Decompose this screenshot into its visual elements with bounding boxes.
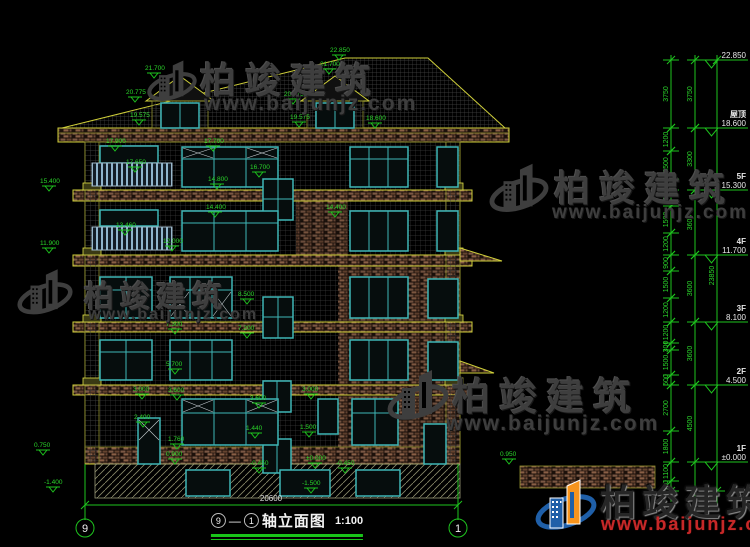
dim-segment-value: 1800: [663, 439, 670, 455]
footer-logo: [534, 472, 598, 541]
drawing-title: 9—1 轴立面图 1:100: [211, 510, 363, 540]
level-markers: 22.850屋顶18.6005F15.3004F11.7003F8.1002F4…: [693, 51, 748, 470]
elevation-mark-icon: [128, 97, 142, 102]
elevation-label: 17.700: [204, 138, 224, 145]
elevation-label: 5.700: [166, 361, 183, 368]
axis-dash: —: [229, 514, 241, 528]
grid-bubble-9-label: 9: [82, 523, 88, 535]
elevation-label: 14.400: [326, 204, 346, 211]
watermark-left: [16, 262, 74, 325]
elevation-mark-icon: [36, 450, 50, 455]
elevation-label: 20.775: [126, 89, 146, 96]
watermark-top-url: www.baijunjz.com: [204, 92, 417, 116]
level-name: 3F: [737, 304, 746, 313]
dim-segment-value: 1500: [663, 355, 670, 371]
level-value: 11.700: [722, 246, 746, 255]
elevation-label: 16.700: [250, 164, 270, 171]
elevation-label: 18.600: [366, 115, 386, 122]
elevation-label: 11.900: [40, 240, 60, 247]
level-value: ±0.000: [722, 453, 747, 462]
elevation-mark-icon: [46, 487, 60, 492]
elevation-label: 3.600: [250, 395, 267, 402]
elevation-mark-icon: [42, 186, 56, 191]
dim-segment-value: 3600: [687, 281, 694, 297]
title-underline-thin: [211, 539, 363, 540]
dim-segment-value: 3600: [687, 346, 694, 362]
baijun-logo-icon: [488, 156, 550, 218]
baijun-logo-icon: [16, 262, 74, 320]
level-name: 2F: [737, 367, 746, 376]
level-name: 屋顶: [730, 109, 746, 119]
elevation-label: 1.440: [246, 425, 263, 432]
dim-segment-value: 1500: [663, 277, 670, 293]
dim-segment-value: 1200: [663, 325, 670, 341]
elevation-label: -1.400: [44, 479, 63, 486]
drawing-scale: 1:100: [335, 515, 363, 527]
dim-segment-value: 1200: [663, 302, 670, 318]
elevation-label: 17.650: [126, 159, 146, 166]
elevation-label: 1.500: [300, 424, 317, 431]
elevation-label: 15.400: [40, 178, 60, 185]
level-triangle-icon: [705, 385, 718, 393]
elevation-label: 2.400: [134, 414, 151, 421]
elevation-label: 13.460: [116, 222, 136, 229]
elevation-label: 7.200: [238, 325, 255, 332]
elevation-label: 0.950: [500, 451, 517, 458]
total-width-dim: 20600: [260, 494, 283, 503]
elevation-label: 14.800: [208, 176, 228, 183]
dim-segment-value: 3750: [687, 86, 694, 102]
watermark-top: [146, 54, 198, 111]
elevation-label: 8.500: [238, 291, 255, 298]
elevation-label: 0.750: [34, 442, 51, 449]
baijun-logo-icon: [386, 362, 450, 426]
dim-segment-value: 300: [663, 341, 670, 353]
elevation-label: 1.760: [168, 436, 185, 443]
level-value: 8.100: [726, 313, 747, 322]
watermark-right-url: www.baijunjz.com: [552, 202, 748, 224]
dim-segment-value: 4500: [687, 416, 694, 432]
watermark-right: [488, 156, 550, 223]
dim-segment-value: 900: [663, 257, 670, 269]
level-name: 5F: [737, 172, 746, 181]
dim-segment-value: 1200: [663, 236, 670, 252]
level-name: 4F: [737, 237, 746, 246]
elevation-label: 3.000: [302, 386, 319, 393]
dim-segment-value: 600: [663, 374, 670, 386]
elevation-label: ±0.000: [306, 455, 326, 462]
level-value: 4.500: [726, 376, 747, 385]
title-underline: [211, 534, 363, 537]
elevation-label: 3.600: [168, 387, 185, 394]
watermark-bottom: [386, 362, 450, 431]
axis-bubble-right: 1: [244, 513, 259, 528]
cad-sheet: 3750120015006009001500120090015001200120…: [0, 0, 750, 547]
floor-4f: [92, 210, 458, 251]
level-value: 18.600: [722, 119, 747, 128]
elevation-mark-icon: [42, 248, 56, 253]
elevation-label: -1.500: [302, 480, 321, 487]
elevation-label: 14.400: [206, 204, 226, 211]
dimension-segments: 3750120015006009001500120090015001200120…: [663, 56, 725, 495]
elevation-label: 3.000: [133, 386, 150, 393]
level-triangle-icon: [705, 462, 718, 470]
watermark-bottom-url: www.baijunjz.com: [446, 412, 659, 436]
dim-segment-value: 3750: [663, 86, 670, 102]
watermark-left-url: www.baijunjz.com: [88, 306, 258, 324]
elevation-label: 17.900: [106, 138, 126, 145]
grid-bubble-1-label: 1: [455, 523, 461, 535]
elevation-label: 0.900: [166, 451, 183, 458]
elevation-label: -0.450: [336, 460, 355, 467]
level-triangle-icon: [705, 255, 718, 263]
level-triangle-icon: [705, 322, 718, 330]
drawing-title-text: 轴立面图: [262, 510, 326, 531]
elevation-mark-icon: [502, 459, 516, 464]
balcony-railing: [92, 163, 172, 186]
elevation-label: -0.450: [250, 460, 269, 467]
baijun-logo-icon: [146, 54, 198, 106]
level-name: 1F: [737, 444, 746, 453]
level-value: 22.850: [722, 51, 747, 60]
elevation-label: 12.000: [163, 238, 183, 245]
baijun-logo-color-icon: [534, 472, 598, 536]
dim-segment-value: 23850: [709, 266, 716, 286]
elevation-label: 19.575: [130, 112, 150, 119]
dim-segment-value: 2700: [663, 400, 670, 416]
footer-url: www.baijunjz.com: [601, 514, 750, 535]
level-triangle-icon: [705, 128, 718, 136]
axis-bubble-left: 9: [211, 513, 226, 528]
dim-segment-value: 1200: [663, 132, 670, 148]
